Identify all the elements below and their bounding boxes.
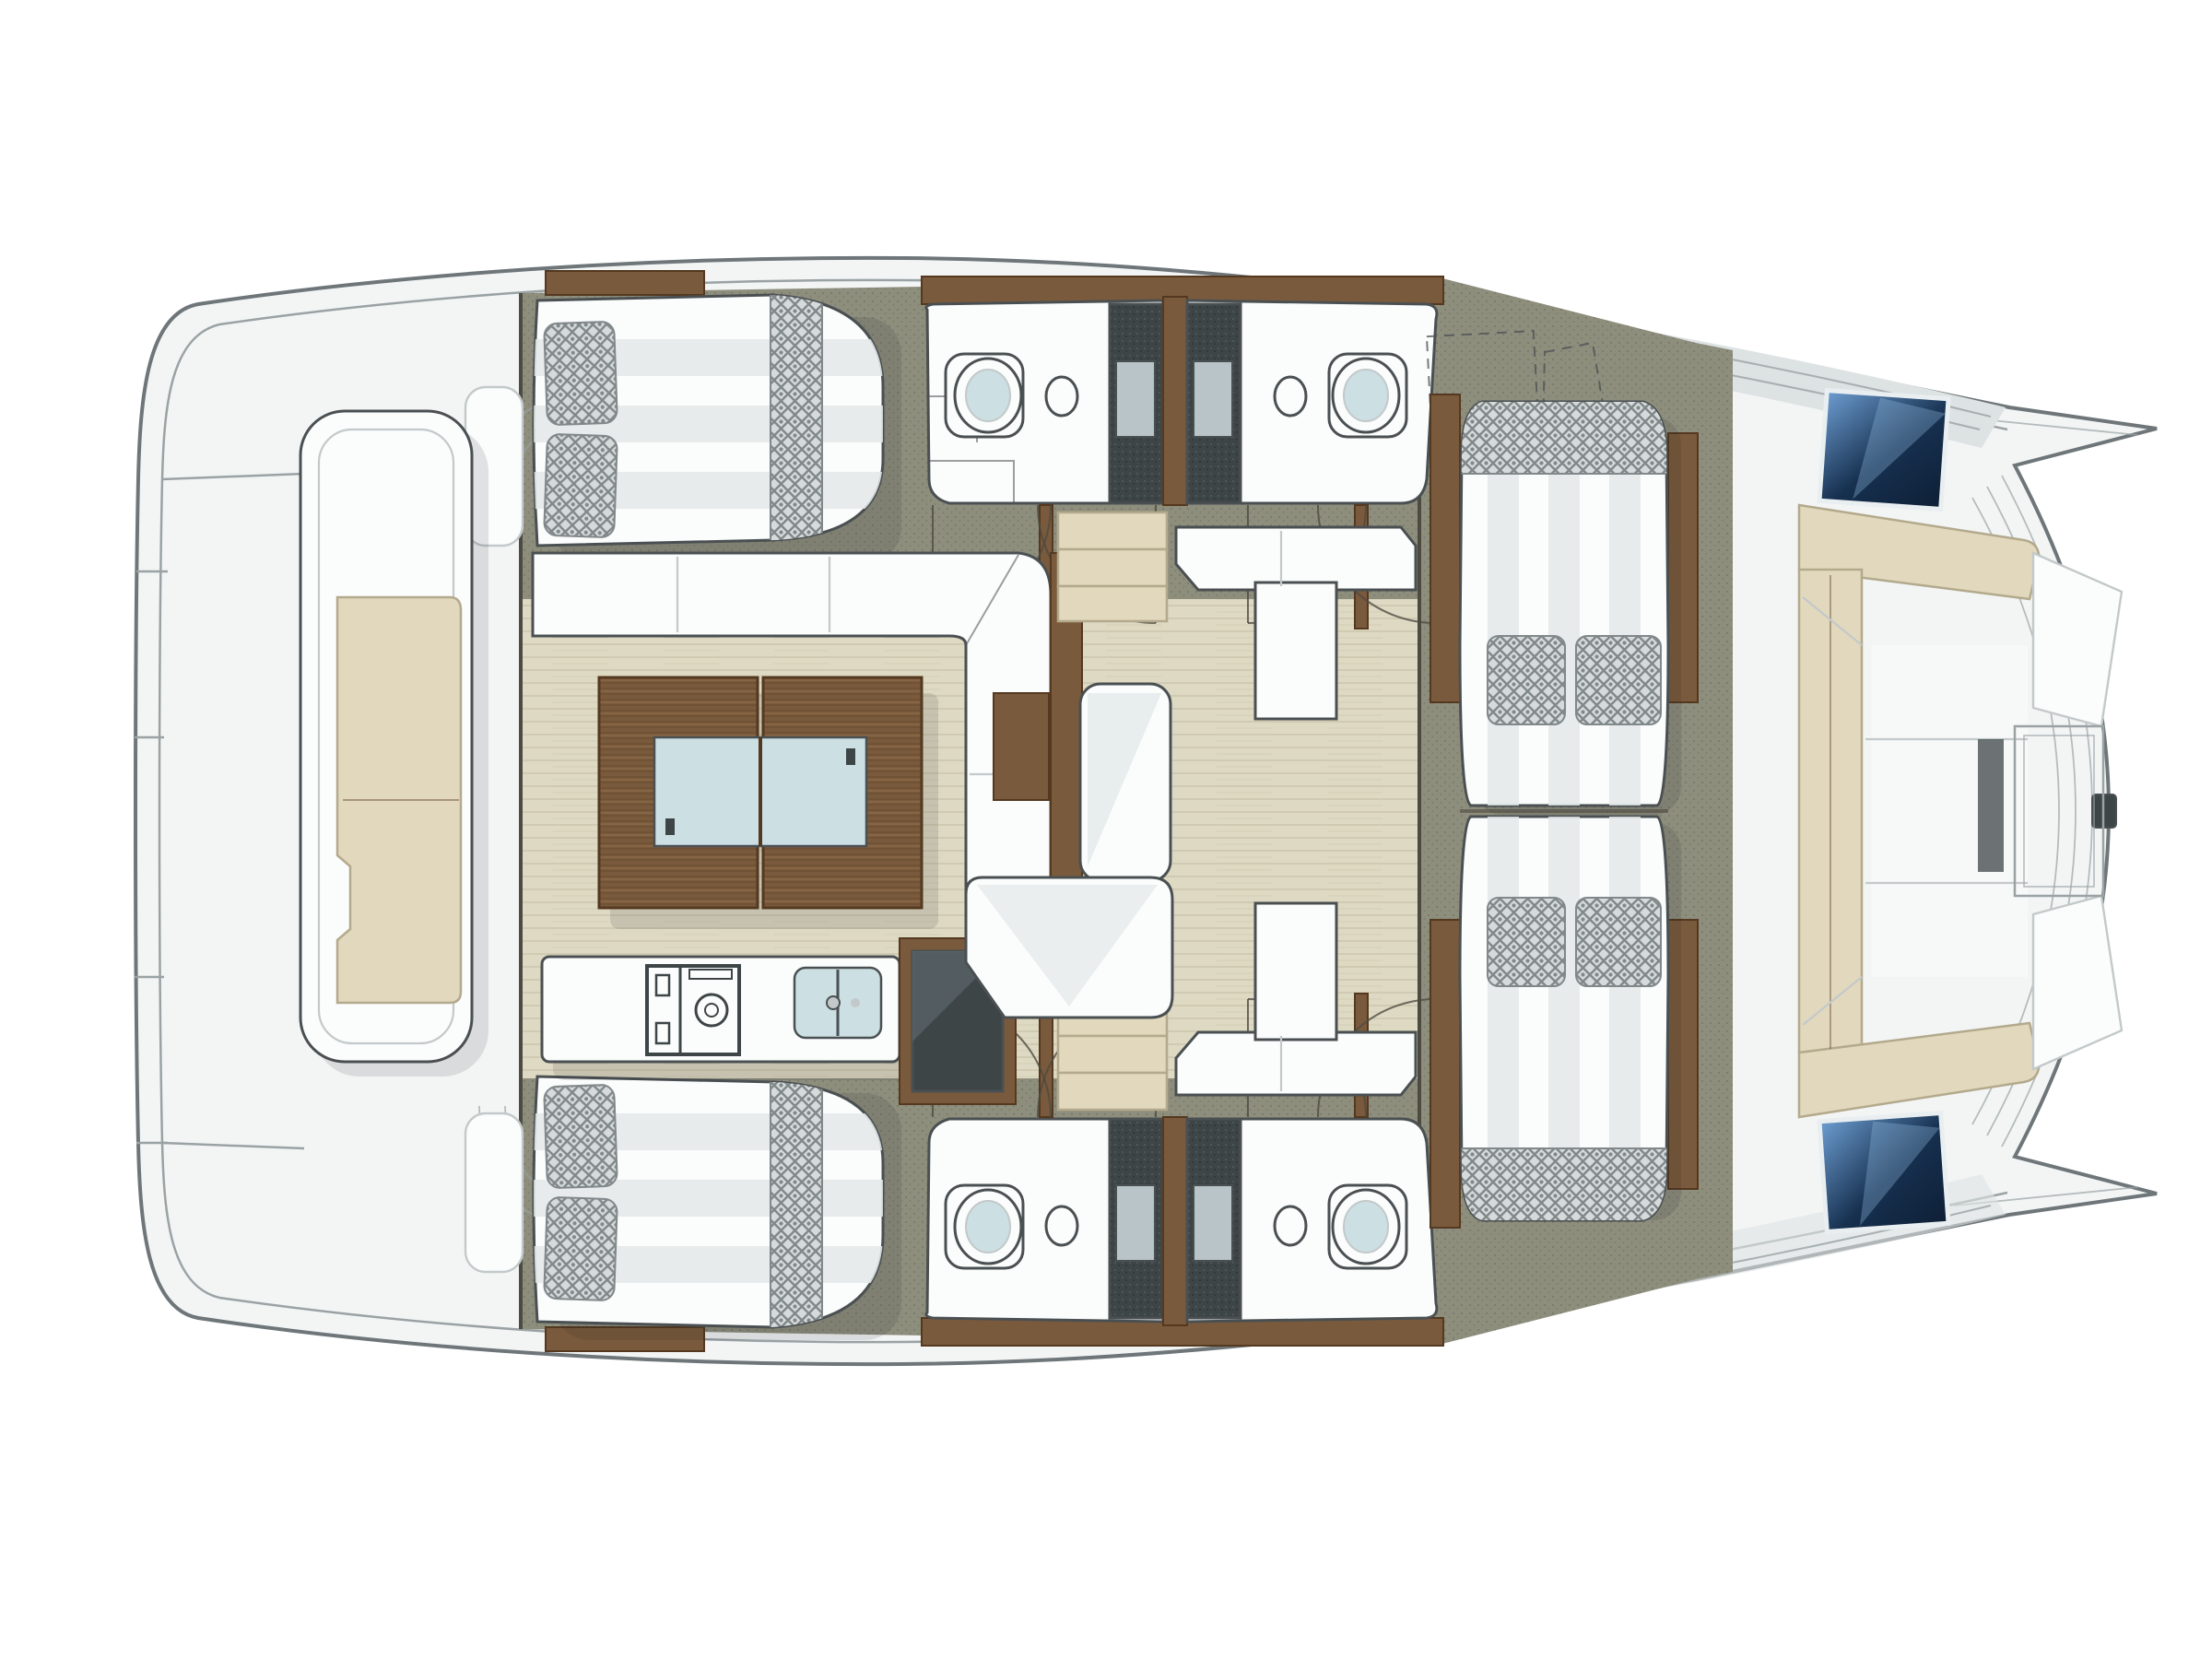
- bath-upper-aft: [926, 300, 1163, 503]
- bow-seatback-upper: [2033, 553, 2122, 726]
- galley-sink: [794, 968, 881, 1038]
- bed-lower-pillow-1: [544, 1197, 618, 1301]
- sunpad-slat: [1430, 394, 1460, 702]
- bed-upper-pillow-1: [544, 322, 618, 426]
- toilet: [1329, 354, 1406, 437]
- bath-upper-fwd: [1187, 300, 1437, 503]
- steps-upper: [1058, 512, 1167, 621]
- cabin-upper: [530, 271, 901, 564]
- catamaran-floorplan: Catamaran deck layout — top-down floor p…: [0, 0, 2212, 1659]
- lounge-sofa: [966, 877, 1172, 1018]
- bed-upper: [530, 286, 889, 555]
- cooktop: [647, 966, 739, 1054]
- cabin-lower: [530, 1067, 901, 1351]
- shower: [1187, 304, 1241, 503]
- sunpad-upper-cushion-1: [1488, 636, 1565, 724]
- toilet: [946, 354, 1023, 437]
- coffee-table: [994, 693, 1049, 800]
- bed-lower: [530, 1067, 889, 1336]
- chaise: [1080, 684, 1171, 881]
- washbasin: [1275, 377, 1306, 416]
- bed-lower-runner: [771, 1067, 822, 1336]
- bath-upper-divider: [1163, 297, 1187, 505]
- bath-lower-divider: [1163, 1117, 1187, 1325]
- deck-step-bottom: [465, 1113, 523, 1272]
- bed-upper-pillow-2: [544, 434, 618, 538]
- sunpad-slat: [1430, 920, 1460, 1228]
- cabin-upper-shelf: [546, 271, 704, 295]
- shower: [1110, 1119, 1163, 1318]
- bathrooms-upper: [922, 276, 1443, 505]
- washbasin: [1046, 377, 1077, 416]
- transom-bench: [300, 411, 472, 1062]
- sunpad-lower-cushion-1: [1488, 898, 1565, 986]
- washbasin: [1046, 1206, 1077, 1245]
- bath-lower-fwd: [1187, 1119, 1437, 1322]
- floorplan-canvas: Catamaran deck layout — top-down floor p…: [0, 0, 2212, 1659]
- washbasin: [1275, 1206, 1306, 1245]
- settee-upper-seat: [1255, 582, 1336, 719]
- bathrooms-lower: [922, 1117, 1443, 1346]
- sunpads: [1430, 394, 1698, 1228]
- toilet: [1329, 1185, 1406, 1268]
- anchor-locker-recess: [1978, 739, 2004, 872]
- shower: [1110, 304, 1163, 503]
- bath-lower-aft: [926, 1119, 1163, 1322]
- sunpad-lower: [1456, 811, 1672, 1226]
- sunpad-upper-cushion-2: [1576, 636, 1661, 724]
- sunpad-lower-cushion-2: [1576, 898, 1661, 986]
- sunpad-upper: [1456, 396, 1672, 811]
- bow-seatback-lower: [2033, 896, 2122, 1069]
- dining-table: [599, 677, 938, 929]
- settee-lower-seat: [1255, 903, 1336, 1040]
- bed-upper-runner: [771, 286, 822, 555]
- sunpad-lower-band: [1456, 1148, 1672, 1224]
- toilet: [946, 1185, 1023, 1268]
- shower: [1187, 1119, 1241, 1318]
- bed-lower-pillow-2: [544, 1085, 618, 1189]
- sunpad-upper-band: [1456, 398, 1672, 474]
- galley: [542, 938, 1016, 1104]
